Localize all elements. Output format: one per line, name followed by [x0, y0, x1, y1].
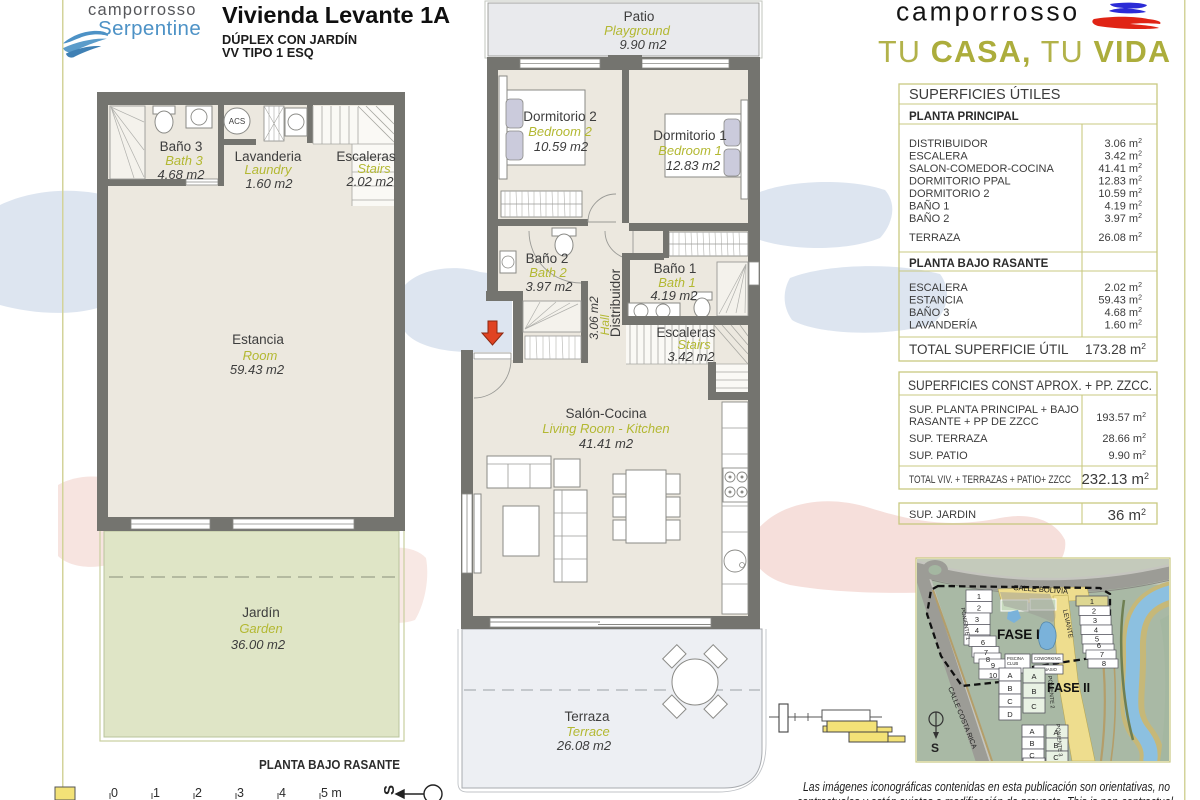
svg-text:3.97 m2: 3.97 m2	[1104, 213, 1142, 225]
svg-text:LAVANDERÍA: LAVANDERÍA	[909, 319, 978, 332]
svg-text:TU CASA, TU VIDA: TU CASA, TU VIDA	[878, 35, 1171, 69]
svg-text:9.90 m2: 9.90 m2	[1108, 450, 1146, 462]
svg-text:9: 9	[991, 661, 995, 670]
svg-text:12.83 m2: 12.83 m2	[666, 158, 721, 173]
svg-text:B: B	[1031, 687, 1036, 696]
svg-text:FASE II: FASE II	[1047, 681, 1090, 695]
svg-text:Terraza: Terraza	[564, 709, 610, 724]
svg-text:BAÑO 3: BAÑO 3	[909, 306, 949, 319]
svg-text:Patio: Patio	[624, 9, 655, 24]
svg-text:8: 8	[1102, 659, 1106, 668]
svg-text:4.19 m2: 4.19 m2	[1104, 201, 1142, 213]
svg-text:Room: Room	[243, 348, 278, 363]
svg-text:C: C	[1031, 702, 1037, 711]
svg-text:ACS: ACS	[229, 117, 245, 126]
svg-text:SUP. PATIO: SUP. PATIO	[909, 450, 968, 462]
svg-text:PLANTA BAJO RASANTE: PLANTA BAJO RASANTE	[909, 258, 1049, 270]
svg-text:S: S	[381, 785, 398, 795]
svg-text:8: 8	[986, 655, 990, 664]
svg-text:ESCALERA: ESCALERA	[909, 282, 968, 294]
svg-text:Serpentine: Serpentine	[98, 17, 201, 40]
svg-text:Garden: Garden	[239, 621, 282, 636]
svg-text:2: 2	[195, 786, 202, 800]
svg-text:Bath 2: Bath 2	[529, 265, 567, 280]
svg-text:TOTAL SUPERFICIE ÚTIL: TOTAL SUPERFICIE ÚTIL	[909, 342, 1069, 357]
svg-text:VV TIPO 1 ESQ: VV TIPO 1 ESQ	[222, 45, 314, 60]
svg-text:36.00 m2: 36.00 m2	[231, 637, 286, 652]
svg-text:0: 0	[111, 786, 118, 800]
svg-text:1: 1	[153, 786, 160, 800]
svg-text:A: A	[1031, 672, 1036, 681]
svg-text:26.08 m2: 26.08 m2	[556, 738, 612, 753]
svg-text:PLANTA BAJO RASANTE: PLANTA BAJO RASANTE	[259, 758, 400, 772]
svg-text:ESCALERA: ESCALERA	[909, 151, 968, 163]
svg-text:173.28 m2: 173.28 m2	[1085, 341, 1146, 357]
svg-text:10: 10	[989, 671, 997, 680]
svg-text:4.68 m2: 4.68 m2	[158, 167, 206, 182]
svg-text:2: 2	[977, 604, 981, 613]
svg-text:4.68 m2: 4.68 m2	[1104, 307, 1142, 319]
svg-text:3: 3	[1093, 616, 1097, 625]
svg-text:41.41 m2: 41.41 m2	[579, 436, 634, 451]
svg-text:DISTRIBUIDOR: DISTRIBUIDOR	[909, 138, 988, 150]
svg-text:ESTANCIA: ESTANCIA	[909, 295, 964, 307]
svg-text:3.97 m2: 3.97 m2	[526, 279, 574, 294]
svg-text:Dormitorio 1: Dormitorio 1	[653, 128, 727, 143]
svg-text:B: B	[1029, 739, 1034, 748]
svg-text:Laundry: Laundry	[245, 162, 293, 177]
svg-text:5 m: 5 m	[321, 786, 342, 800]
svg-text:10.59 m2: 10.59 m2	[534, 139, 589, 154]
svg-text:Baño 3: Baño 3	[160, 139, 203, 154]
svg-text:S: S	[931, 741, 939, 755]
svg-text:2.02 m2: 2.02 m2	[1104, 282, 1142, 294]
svg-text:1.60 m2: 1.60 m2	[246, 176, 294, 191]
svg-text:Estancia: Estancia	[232, 332, 284, 347]
svg-text:3.42 m2: 3.42 m2	[1104, 151, 1142, 163]
svg-text:Baño 2: Baño 2	[526, 251, 569, 266]
svg-text:Living Room - Kitchen: Living Room - Kitchen	[542, 421, 669, 436]
svg-text:Baño 1: Baño 1	[654, 261, 697, 276]
svg-text:4.19 m2: 4.19 m2	[651, 288, 699, 303]
svg-text:232.13 m2: 232.13 m2	[1081, 471, 1149, 488]
svg-text:12.83 m2: 12.83 m2	[1098, 176, 1142, 188]
svg-text:193.57 m2: 193.57 m2	[1096, 412, 1146, 424]
svg-text:SUPERFICIES ÚTILES: SUPERFICIES ÚTILES	[909, 86, 1060, 103]
svg-text:1: 1	[977, 592, 981, 601]
svg-text:1.60 m2: 1.60 m2	[1104, 320, 1142, 332]
svg-text:Las imágenes iconográficas con: Las imágenes iconográficas contenidas en…	[803, 779, 1170, 794]
svg-text:Bedroom 1: Bedroom 1	[658, 143, 722, 158]
svg-text:TERRAZA: TERRAZA	[909, 232, 961, 244]
svg-text:camporrosso: camporrosso	[896, 0, 1080, 27]
svg-text:Salón-Cocina: Salón-Cocina	[565, 406, 647, 421]
svg-text:3.06 m2: 3.06 m2	[1104, 138, 1142, 150]
svg-text:SUPERFICIES CONST APROX. + PP.: SUPERFICIES CONST APROX. + PP. ZZCC.	[908, 378, 1152, 393]
svg-text:SALON-COMEDOR-COCINA: SALON-COMEDOR-COCINA	[909, 163, 1055, 175]
svg-text:1: 1	[1090, 597, 1094, 606]
svg-text:6: 6	[981, 638, 985, 647]
svg-text:DORMITORIO PPAL: DORMITORIO PPAL	[909, 176, 1011, 188]
svg-text:A: A	[1029, 727, 1034, 736]
svg-text:Dormitorio 2: Dormitorio 2	[523, 109, 597, 124]
svg-text:3: 3	[975, 615, 979, 624]
svg-text:28.66 m2: 28.66 m2	[1102, 433, 1146, 445]
svg-text:7: 7	[1100, 650, 1104, 659]
svg-text:Playground: Playground	[604, 23, 671, 38]
svg-text:2.02 m2: 2.02 m2	[346, 174, 395, 189]
svg-text:Terrace: Terrace	[566, 724, 610, 739]
svg-text:Bedroom 2: Bedroom 2	[528, 124, 592, 139]
svg-text:TOTAL VIV. + TERRAZAS + PATIO+: TOTAL VIV. + TERRAZAS + PATIO+ ZZCC	[909, 474, 1071, 486]
svg-text:41.41 m2: 41.41 m2	[1098, 163, 1142, 175]
svg-text:A: A	[1007, 671, 1012, 680]
svg-text:6: 6	[1097, 641, 1101, 650]
svg-text:59.43 m2: 59.43 m2	[1098, 295, 1142, 307]
svg-text:9.90 m2: 9.90 m2	[620, 37, 668, 52]
svg-text:10.59 m2: 10.59 m2	[1098, 188, 1142, 200]
svg-text:4: 4	[279, 786, 286, 800]
svg-text:SUP. PLANTA PRINCIPAL + BAJO: SUP. PLANTA PRINCIPAL + BAJO	[909, 404, 1079, 416]
svg-text:RASANTE + PP DE ZZCC: RASANTE + PP DE ZZCC	[909, 416, 1039, 428]
svg-text:CLUB: CLUB	[1007, 661, 1018, 666]
svg-text:DORMITORIO 2: DORMITORIO 2	[909, 188, 989, 200]
svg-text:59.43 m2: 59.43 m2	[230, 362, 285, 377]
svg-text:BAÑO 1: BAÑO 1	[909, 200, 949, 213]
svg-text:SUP. JARDIN: SUP. JARDIN	[909, 509, 976, 521]
svg-text:C: C	[1029, 751, 1035, 760]
svg-text:COWORKING: COWORKING	[1034, 656, 1061, 661]
svg-text:SUP. TERRAZA: SUP. TERRAZA	[909, 433, 988, 445]
svg-text:Vivienda Levante 1A: Vivienda Levante 1A	[222, 2, 450, 28]
svg-text:C: C	[1007, 697, 1013, 706]
svg-text:2: 2	[1092, 607, 1096, 616]
svg-text:36 m2: 36 m2	[1108, 507, 1146, 524]
svg-text:B: B	[1007, 684, 1012, 693]
svg-text:FASE I: FASE I	[997, 627, 1040, 642]
svg-text:PLANTA PRINCIPAL: PLANTA PRINCIPAL	[909, 111, 1019, 123]
svg-text:D: D	[1007, 710, 1013, 719]
svg-text:Bath 3: Bath 3	[165, 153, 203, 168]
svg-text:Distribuidor: Distribuidor	[608, 268, 623, 337]
svg-text:4: 4	[1094, 626, 1098, 635]
svg-text:Jardín: Jardín	[242, 605, 280, 620]
svg-text:BAÑO 2: BAÑO 2	[909, 212, 949, 225]
svg-text:contractuales y están sujetas: contractuales y están sujetas a modifica…	[797, 794, 1174, 800]
svg-text:4: 4	[975, 626, 979, 635]
svg-text:3.42 m2: 3.42 m2	[668, 349, 716, 364]
svg-text:26.08 m2: 26.08 m2	[1098, 232, 1142, 244]
svg-text:3: 3	[237, 786, 244, 800]
